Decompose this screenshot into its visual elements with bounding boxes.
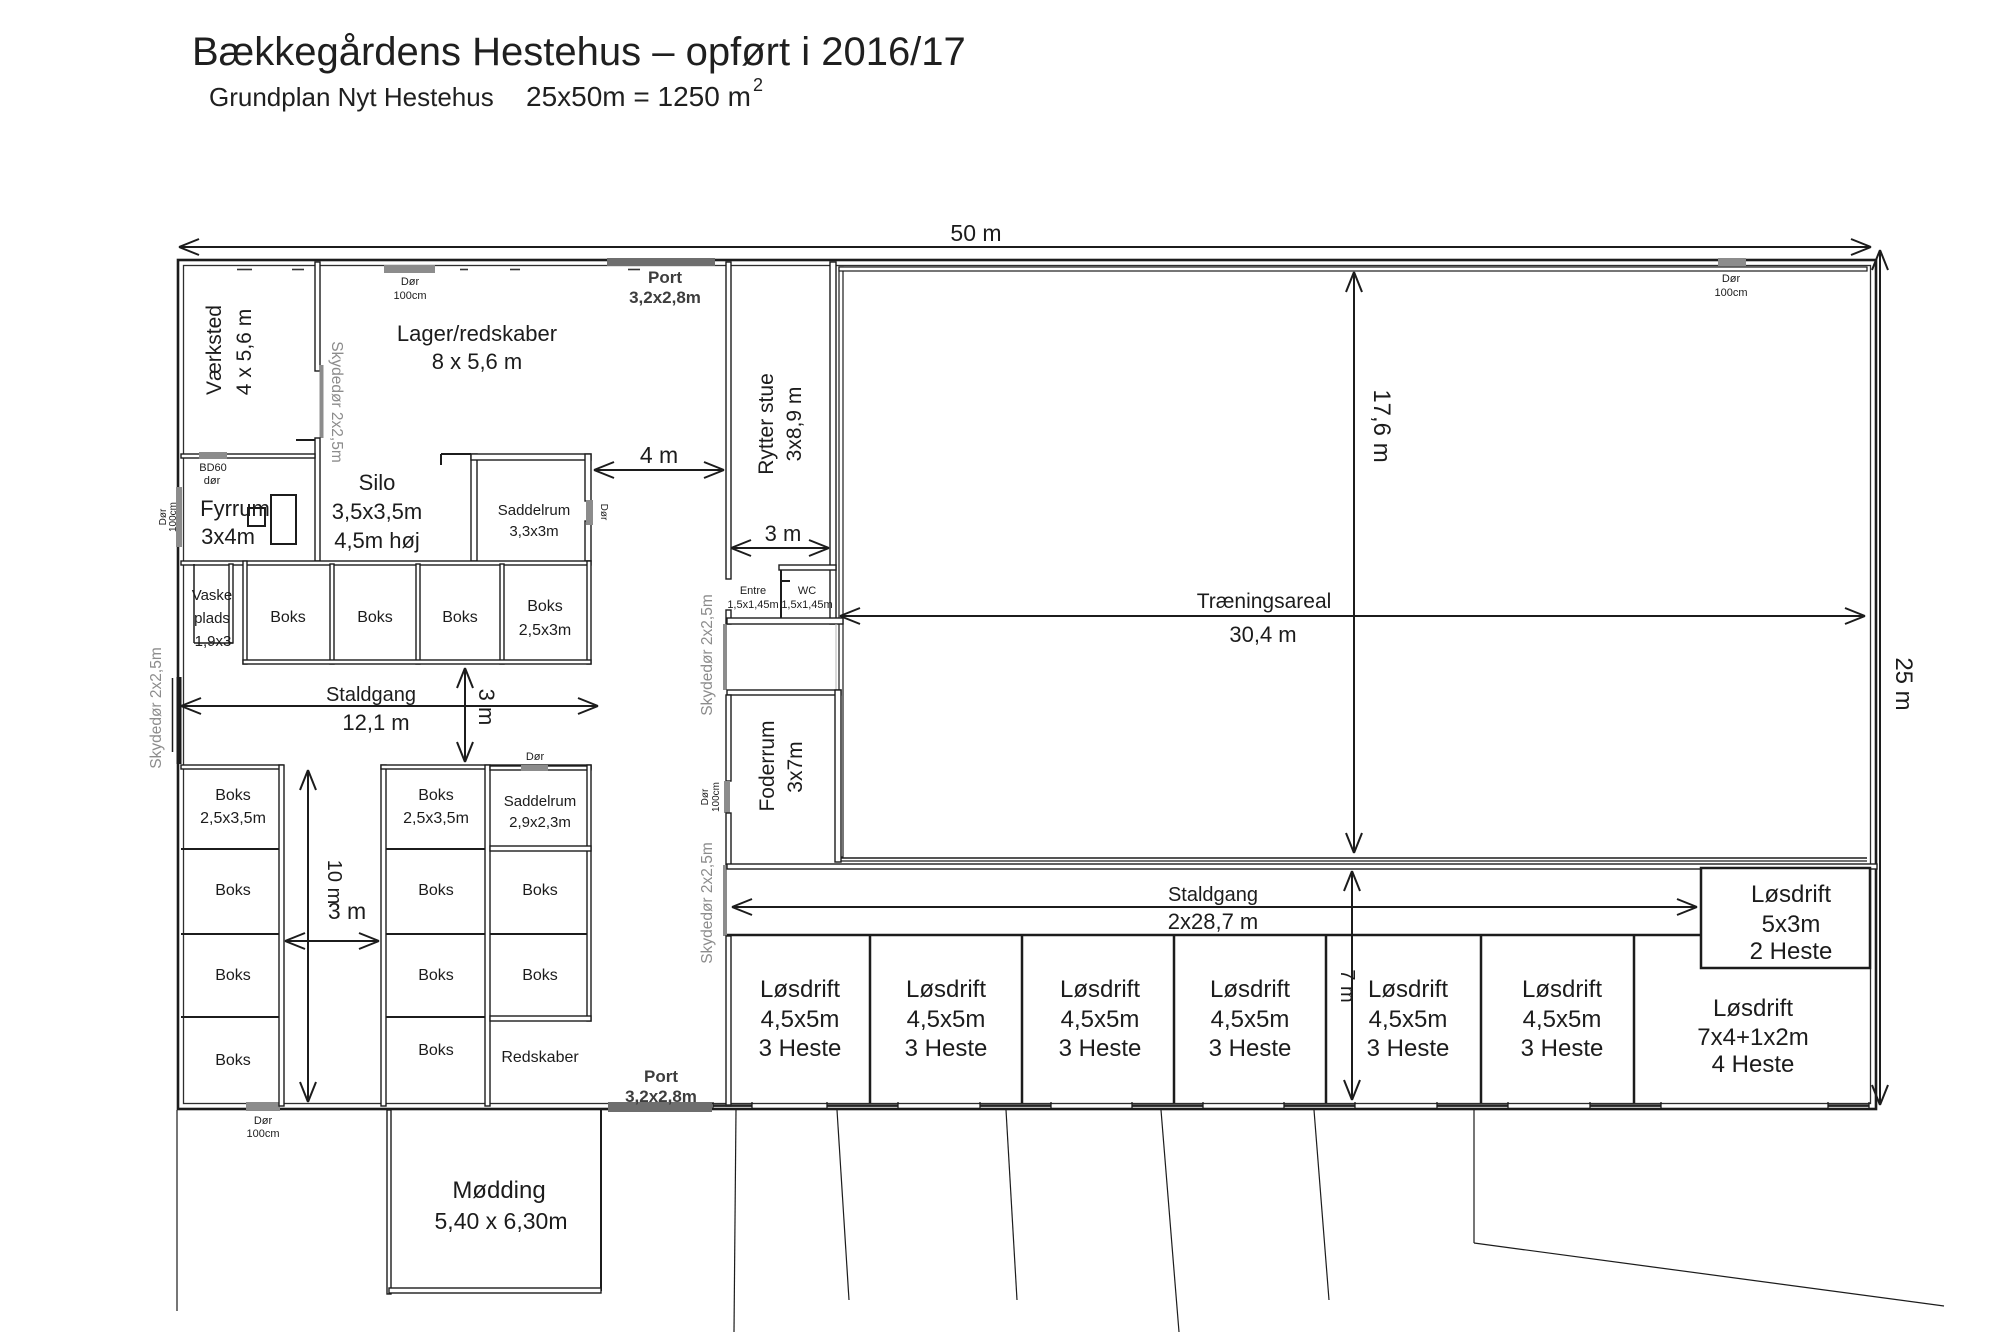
svg-text:Boks: Boks [418, 1042, 454, 1059]
svg-text:Boks: Boks [418, 967, 454, 984]
svg-text:3x4m: 3x4m [201, 524, 255, 549]
svg-text:Foderrum: Foderrum [756, 720, 779, 811]
svg-text:4 m: 4 m [640, 442, 678, 468]
svg-text:3x8,9 m: 3x8,9 m [783, 387, 806, 462]
svg-text:3,2x2,8m: 3,2x2,8m [625, 1087, 697, 1106]
svg-text:4,5x5m: 4,5x5m [907, 1006, 986, 1033]
svg-text:100cm: 100cm [1714, 287, 1747, 299]
svg-text:Port: Port [648, 268, 682, 287]
svg-text:Skydedør 2x2,5m: Skydedør 2x2,5m [328, 341, 345, 462]
svg-text:Port: Port [644, 1067, 678, 1086]
svg-text:2,5x3m: 2,5x3m [519, 622, 571, 639]
svg-text:Løsdrift: Løsdrift [1368, 976, 1448, 1003]
svg-text:4,5m høj: 4,5m høj [334, 528, 420, 553]
svg-text:Saddelrum: Saddelrum [498, 502, 571, 519]
svg-text:Entre: Entre [740, 585, 766, 597]
svg-text:Skydedør 2x2,5m: Skydedør 2x2,5m [148, 647, 165, 768]
svg-text:Boks: Boks [527, 598, 563, 615]
svg-text:3 Heste: 3 Heste [1209, 1035, 1292, 1062]
svg-text:3 Heste: 3 Heste [905, 1035, 988, 1062]
svg-text:Saddelrum: Saddelrum [504, 793, 577, 810]
svg-text:5,40 x 6,30m: 5,40 x 6,30m [435, 1208, 568, 1234]
svg-text:4,5x5m: 4,5x5m [1369, 1006, 1448, 1033]
svg-text:Dør: Dør [526, 751, 545, 763]
svg-text:Staldgang: Staldgang [1168, 884, 1258, 906]
svg-text:Træningsareal: Træningsareal [1197, 590, 1332, 613]
svg-text:Værksted: Værksted [203, 305, 226, 395]
svg-text:Løsdrift: Løsdrift [1713, 995, 1793, 1022]
svg-text:Boks: Boks [215, 967, 251, 984]
svg-text:Løsdrift: Løsdrift [1060, 976, 1140, 1003]
svg-text:4 Heste: 4 Heste [1712, 1051, 1795, 1078]
svg-text:4,5x5m: 4,5x5m [761, 1006, 840, 1033]
svg-text:3 Heste: 3 Heste [1521, 1035, 1604, 1062]
svg-text:2,5x3,5m: 2,5x3,5m [200, 810, 266, 827]
svg-text:8 x 5,6 m: 8 x 5,6 m [432, 349, 522, 374]
svg-text:2 Heste: 2 Heste [1750, 938, 1833, 965]
svg-text:4 x 5,6 m: 4 x 5,6 m [233, 309, 256, 395]
svg-text:Dør: Dør [401, 276, 420, 288]
svg-text:Rytter stue: Rytter stue [755, 373, 778, 475]
svg-text:25x50m = 1250 m: 25x50m = 1250 m [526, 81, 751, 112]
svg-text:3 m: 3 m [328, 898, 366, 924]
svg-text:Skydedør 2x2,5m: Skydedør 2x2,5m [699, 594, 716, 715]
svg-text:Løsdrift: Løsdrift [1751, 881, 1831, 908]
svg-text:Løsdrift: Løsdrift [1210, 976, 1290, 1003]
svg-text:Boks: Boks [418, 882, 454, 899]
svg-text:100cm: 100cm [168, 502, 179, 532]
svg-text:100cm: 100cm [246, 1128, 279, 1140]
svg-text:Staldgang: Staldgang [326, 684, 416, 706]
svg-text:2: 2 [753, 75, 763, 95]
svg-text:Boks: Boks [442, 609, 478, 626]
svg-text:Boks: Boks [215, 1052, 251, 1069]
svg-text:25 m: 25 m [1890, 657, 1917, 710]
svg-text:2x28,7 m: 2x28,7 m [1168, 909, 1259, 934]
svg-text:3x7m: 3x7m [784, 741, 807, 792]
svg-text:4,5x5m: 4,5x5m [1211, 1006, 1290, 1033]
svg-text:Dør: Dør [700, 788, 711, 805]
svg-text:50 m: 50 m [950, 220, 1001, 246]
svg-text:Silo: Silo [359, 470, 396, 495]
svg-text:3,3x3m: 3,3x3m [509, 523, 558, 540]
svg-text:3 m: 3 m [765, 521, 802, 546]
svg-text:Boks: Boks [357, 609, 393, 626]
svg-text:Løsdrift: Løsdrift [906, 976, 986, 1003]
svg-text:7x4+1x2m: 7x4+1x2m [1697, 1024, 1808, 1051]
svg-text:Mødding: Mødding [452, 1177, 545, 1204]
svg-text:Skydedør 2x2,5m: Skydedør 2x2,5m [699, 842, 716, 963]
svg-text:2,5x3,5m: 2,5x3,5m [403, 810, 469, 827]
svg-text:100cm: 100cm [711, 782, 722, 812]
svg-text:3,2x2,8m: 3,2x2,8m [629, 288, 701, 307]
svg-text:Boks: Boks [215, 882, 251, 899]
svg-text:Dør: Dør [1722, 273, 1741, 285]
svg-text:Boks: Boks [215, 787, 251, 804]
svg-text:1,5x1,45m: 1,5x1,45m [727, 599, 778, 611]
svg-text:Lager/redskaber: Lager/redskaber [397, 321, 557, 346]
svg-text:Bækkegårdens Hestehus – opført: Bækkegårdens Hestehus – opført i 2016/17 [192, 30, 966, 74]
svg-text:3 Heste: 3 Heste [759, 1035, 842, 1062]
svg-text:Boks: Boks [270, 609, 306, 626]
svg-text:Redskaber: Redskaber [501, 1049, 579, 1066]
svg-text:5x3m: 5x3m [1762, 911, 1821, 938]
svg-text:Boks: Boks [418, 787, 454, 804]
svg-text:1,9x3: 1,9x3 [195, 633, 232, 650]
svg-text:Boks: Boks [522, 967, 558, 984]
svg-text:dør: dør [204, 475, 221, 487]
svg-text:Boks: Boks [522, 882, 558, 899]
svg-text:plads: plads [194, 610, 230, 627]
svg-text:Dør: Dør [254, 1115, 273, 1127]
svg-text:Løsdrift: Løsdrift [1522, 976, 1602, 1003]
svg-text:17,6 m: 17,6 m [1368, 389, 1395, 462]
svg-text:Vaske: Vaske [192, 587, 233, 604]
svg-text:4,5x5m: 4,5x5m [1061, 1006, 1140, 1033]
svg-text:Dør: Dør [598, 504, 609, 521]
svg-text:Løsdrift: Løsdrift [760, 976, 840, 1003]
svg-text:3 Heste: 3 Heste [1367, 1035, 1450, 1062]
svg-text:12,1 m: 12,1 m [342, 710, 409, 735]
svg-text:WC: WC [798, 585, 816, 597]
svg-text:30,4 m: 30,4 m [1229, 622, 1296, 647]
svg-text:100cm: 100cm [393, 290, 426, 302]
svg-text:7 m: 7 m [1336, 969, 1358, 1002]
svg-text:3 Heste: 3 Heste [1059, 1035, 1142, 1062]
svg-text:2,9x2,3m: 2,9x2,3m [509, 814, 571, 831]
svg-text:4,5x5m: 4,5x5m [1523, 1006, 1602, 1033]
svg-text:3 m: 3 m [474, 689, 499, 726]
svg-text:3,5x3,5m: 3,5x3,5m [332, 499, 423, 524]
svg-text:1,5x1,45m: 1,5x1,45m [781, 599, 832, 611]
svg-text:BD60: BD60 [199, 462, 227, 474]
svg-text:Grundplan Nyt Hestehus: Grundplan Nyt Hestehus [209, 82, 494, 112]
